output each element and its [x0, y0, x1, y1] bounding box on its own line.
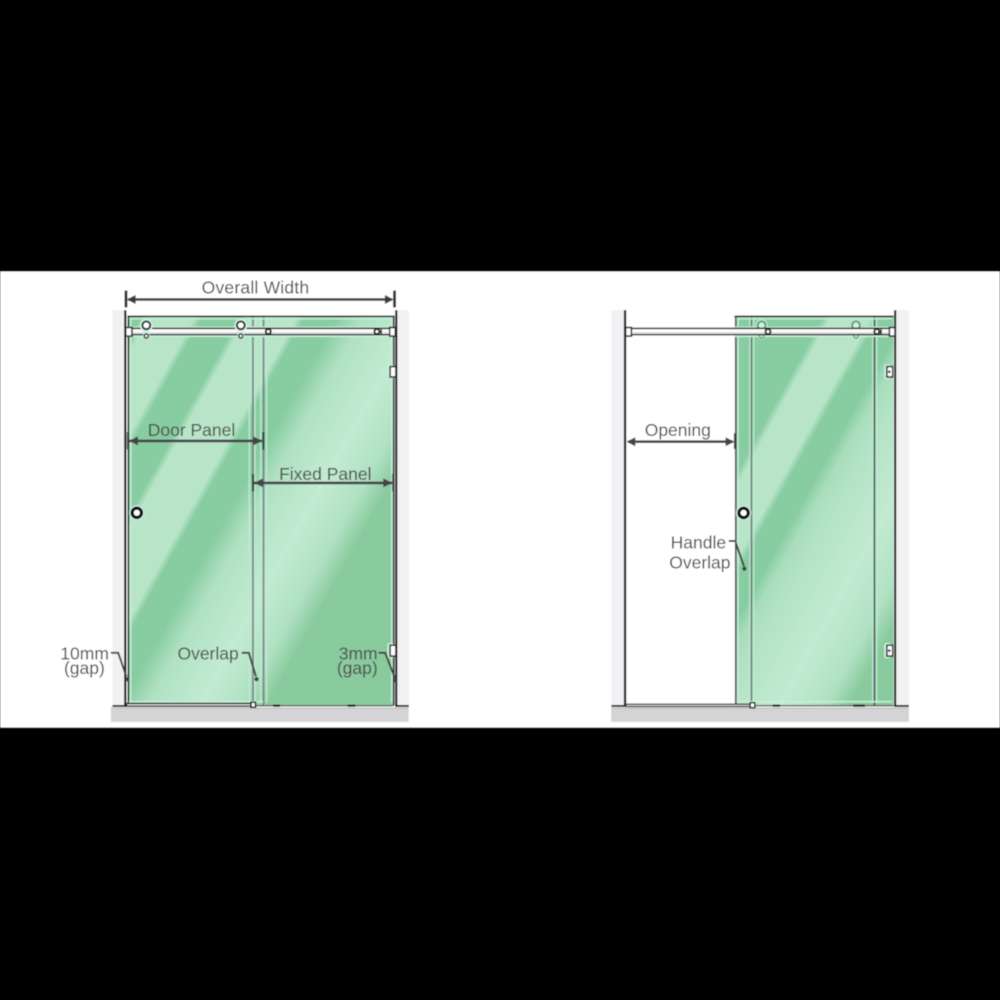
svg-text:Handle: Handle: [671, 532, 726, 552]
svg-text:Opening: Opening: [645, 420, 711, 440]
svg-text:(gap): (gap): [337, 658, 378, 678]
svg-text:Door Panel: Door Panel: [148, 420, 236, 440]
svg-text:(gap): (gap): [64, 658, 105, 678]
svg-text:Overlap: Overlap: [669, 552, 730, 572]
svg-text:Overlap: Overlap: [177, 644, 238, 664]
svg-text:Overall Width: Overall Width: [202, 278, 310, 298]
svg-text:Fixed Panel: Fixed Panel: [279, 464, 371, 484]
